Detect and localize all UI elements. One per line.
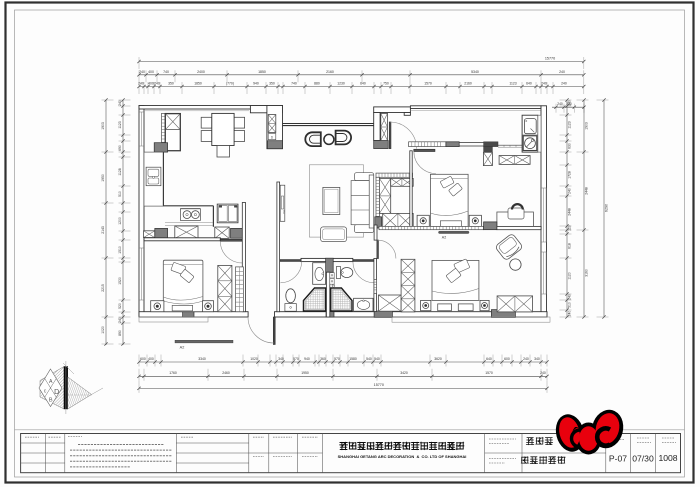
svg-text:880: 880 — [314, 82, 320, 86]
svg-text:15770: 15770 — [374, 383, 384, 387]
svg-text:3160: 3160 — [585, 269, 589, 277]
svg-text:240: 240 — [561, 82, 567, 86]
svg-text:1200: 1200 — [118, 217, 122, 225]
svg-text:2460: 2460 — [222, 371, 230, 375]
svg-text:640: 640 — [526, 82, 532, 86]
svg-text:540: 540 — [366, 357, 372, 361]
svg-text:1020: 1020 — [101, 326, 105, 334]
svg-text:240: 240 — [118, 100, 122, 106]
svg-text:360: 360 — [320, 357, 326, 361]
svg-text:570: 570 — [334, 357, 340, 361]
svg-text:940: 940 — [253, 82, 259, 86]
svg-text:1020: 1020 — [250, 357, 258, 361]
svg-text:A: A — [49, 379, 53, 385]
svg-text:1123: 1123 — [118, 121, 122, 128]
svg-text:1123: 1123 — [568, 121, 572, 128]
svg-text:240: 240 — [568, 100, 572, 106]
svg-text:A2: A2 — [442, 235, 446, 239]
svg-text:5340: 5340 — [471, 70, 479, 74]
svg-text:1950: 1950 — [301, 371, 309, 375]
svg-text:2160: 2160 — [464, 82, 472, 86]
svg-text:2160: 2160 — [326, 70, 334, 74]
svg-text:240: 240 — [540, 371, 546, 375]
svg-text:1570: 1570 — [424, 82, 432, 86]
svg-text:2448: 2448 — [585, 187, 589, 195]
svg-text:240: 240 — [139, 70, 145, 74]
svg-text:1728: 1728 — [568, 171, 572, 179]
svg-text:240: 240 — [541, 82, 547, 86]
svg-text:2448: 2448 — [568, 208, 572, 216]
svg-text:D: D — [54, 389, 59, 396]
svg-text:07/30: 07/30 — [632, 454, 654, 464]
svg-text:600: 600 — [504, 357, 510, 361]
svg-text:1950: 1950 — [101, 174, 105, 182]
svg-text:520: 520 — [118, 303, 122, 309]
svg-text:240: 240 — [523, 357, 529, 361]
svg-text:240: 240 — [154, 82, 160, 86]
svg-text:340: 340 — [278, 357, 284, 361]
svg-text:240: 240 — [568, 294, 572, 300]
svg-text:120: 120 — [568, 225, 572, 231]
svg-text:1850: 1850 — [194, 82, 202, 86]
svg-text:340: 340 — [534, 357, 540, 361]
svg-text:570: 570 — [293, 357, 299, 361]
svg-text:c: c — [44, 389, 47, 395]
svg-text:240: 240 — [559, 70, 565, 74]
svg-text:540: 540 — [374, 357, 380, 361]
svg-text:400: 400 — [148, 82, 154, 86]
svg-text:P-07: P-07 — [609, 454, 627, 464]
svg-text:1128: 1128 — [118, 168, 122, 175]
svg-text:3620: 3620 — [434, 357, 442, 361]
svg-text:SHANGHAI GETANG ARC DECORATION: SHANGHAI GETANG ARC DECORATION & CO. LTD… — [338, 454, 467, 459]
svg-text:740: 740 — [163, 70, 169, 74]
svg-text:1903: 1903 — [101, 122, 105, 130]
svg-text:400: 400 — [148, 357, 154, 361]
svg-text:618: 618 — [568, 243, 572, 249]
svg-text:3340: 3340 — [198, 357, 206, 361]
svg-text:1230: 1230 — [337, 82, 345, 86]
svg-text:1510: 1510 — [118, 246, 122, 254]
svg-text:240: 240 — [118, 317, 122, 323]
svg-text:640: 640 — [360, 82, 366, 86]
svg-text:510: 510 — [118, 191, 122, 197]
svg-text:630: 630 — [568, 143, 572, 149]
svg-text:510: 510 — [568, 302, 572, 308]
svg-text:400: 400 — [148, 70, 154, 74]
svg-text:240: 240 — [138, 82, 144, 86]
svg-text:600: 600 — [140, 357, 146, 361]
svg-text:1903: 1903 — [585, 122, 589, 130]
svg-text:TV: TV — [282, 210, 286, 214]
svg-text:740: 740 — [291, 82, 297, 86]
svg-text:(770): (770) — [226, 82, 234, 86]
svg-text:690: 690 — [118, 145, 122, 151]
svg-text:940: 940 — [304, 357, 310, 361]
svg-text:240: 240 — [557, 102, 563, 106]
svg-text:1570: 1570 — [485, 371, 493, 375]
svg-text:1520: 1520 — [118, 277, 122, 285]
svg-text:890: 890 — [118, 330, 122, 336]
svg-text:2143: 2143 — [101, 226, 105, 234]
svg-text:1850: 1850 — [258, 70, 266, 74]
svg-text:A2: A2 — [180, 346, 185, 350]
svg-text:B: B — [49, 398, 53, 404]
svg-text:6290: 6290 — [605, 204, 609, 212]
svg-text:1760: 1760 — [169, 371, 177, 375]
svg-text:15770: 15770 — [545, 57, 555, 61]
svg-text:1580: 1580 — [349, 357, 357, 361]
svg-text:750: 750 — [383, 82, 389, 86]
svg-text:2400: 2400 — [197, 70, 205, 74]
svg-text:1008: 1008 — [658, 453, 677, 463]
svg-text:350: 350 — [168, 82, 174, 86]
svg-text:1123: 1123 — [509, 82, 516, 86]
svg-text:2215: 2215 — [101, 284, 105, 292]
svg-text:350: 350 — [269, 82, 275, 86]
svg-text:1120: 1120 — [568, 272, 572, 279]
svg-text:640: 640 — [486, 357, 492, 361]
svg-text:240: 240 — [568, 311, 572, 317]
svg-text:240: 240 — [568, 188, 572, 194]
svg-text:3420: 3420 — [400, 371, 408, 375]
